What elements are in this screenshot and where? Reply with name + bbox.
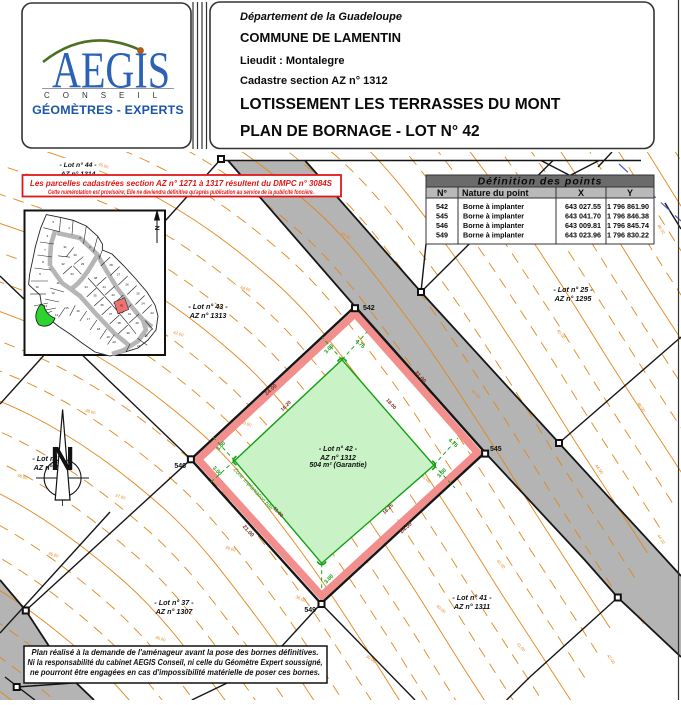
svg-text:- Lot n° 43 -: - Lot n° 43 -: [188, 302, 228, 311]
svg-text:1 796 830.22: 1 796 830.22: [607, 231, 649, 240]
svg-text:41: 41: [128, 312, 132, 316]
svg-text:Lieudit : Montalegre: Lieudit : Montalegre: [240, 55, 345, 67]
svg-text:33: 33: [70, 272, 74, 276]
svg-text:AZ n° 1307: AZ n° 1307: [155, 607, 194, 616]
svg-text:PLAN DE BORNAGE - LOT N° 42: PLAN DE BORNAGE - LOT N° 42: [240, 123, 480, 140]
svg-text:546: 546: [436, 221, 448, 230]
svg-text:12: 12: [51, 291, 55, 295]
svg-text:40: 40: [135, 321, 139, 325]
svg-text:39: 39: [126, 331, 130, 335]
svg-text:Ni la responsabilité du cabine: Ni la responsabilité du cabinet AEGIS Co…: [28, 658, 323, 667]
svg-text:18: 18: [97, 327, 101, 331]
svg-text:1 796 861.90: 1 796 861.90: [607, 202, 649, 211]
svg-text:14: 14: [55, 313, 59, 317]
svg-text:34: 34: [84, 285, 88, 289]
svg-text:13: 13: [44, 304, 48, 308]
svg-text:Cadastre section AZ n° 1312: Cadastre section AZ n° 1312: [240, 75, 388, 87]
svg-text:- Lot n° 41 -: - Lot n° 41 -: [452, 593, 492, 602]
svg-text:N°: N°: [437, 188, 447, 198]
svg-text:31: 31: [63, 245, 67, 249]
svg-text:30: 30: [73, 253, 77, 257]
svg-text:N: N: [51, 440, 75, 477]
svg-text:CONSEIL: CONSEIL: [44, 91, 170, 100]
svg-text:- Lot n° 37 -: - Lot n° 37 -: [154, 598, 194, 607]
svg-text:Définition des points: Définition des points: [478, 176, 603, 188]
svg-text:28: 28: [109, 263, 113, 267]
svg-text:- Lot n° 42 -: - Lot n° 42 -: [319, 445, 358, 453]
svg-text:36: 36: [100, 303, 104, 307]
svg-text:643 041.70: 643 041.70: [565, 212, 601, 221]
svg-text:AZ n° 1311: AZ n° 1311: [453, 602, 490, 611]
svg-text:LOTISSEMENT LES TERRASSES DU M: LOTISSEMENT LES TERRASSES DU MONT: [240, 96, 561, 113]
svg-text:24: 24: [141, 302, 145, 306]
svg-text:29: 29: [81, 262, 85, 266]
svg-text:32: 32: [61, 262, 65, 266]
svg-text:Borne à implanter: Borne à implanter: [463, 212, 524, 221]
svg-text:26: 26: [125, 283, 129, 287]
svg-text:COMMUNE DE LAMENTIN: COMMUNE DE LAMENTIN: [240, 30, 401, 45]
svg-text:25: 25: [136, 292, 140, 296]
svg-text:546: 546: [174, 463, 186, 470]
svg-text:22: 22: [144, 334, 148, 338]
svg-text:37: 37: [109, 312, 113, 316]
svg-text:Y: Y: [627, 188, 633, 198]
svg-text:1 796 845.74: 1 796 845.74: [607, 221, 649, 230]
svg-text:549: 549: [436, 231, 448, 240]
svg-text:Nature du point: Nature du point: [462, 188, 529, 198]
svg-text:AZ n° 1295: AZ n° 1295: [554, 294, 593, 303]
svg-text:1 796 846.38: 1 796 846.38: [607, 212, 649, 221]
svg-text:44: 44: [102, 285, 106, 289]
svg-text:542: 542: [363, 305, 375, 312]
svg-text:35: 35: [93, 294, 97, 298]
svg-text:AZ n° 1312: AZ n° 1312: [319, 454, 356, 462]
svg-text:19: 19: [106, 335, 110, 339]
svg-text:545: 545: [436, 212, 448, 221]
svg-text:504 m² (Garantie): 504 m² (Garantie): [309, 462, 367, 469]
svg-text:N: N: [153, 226, 160, 231]
svg-text:Borne à implanter: Borne à implanter: [463, 231, 524, 240]
svg-text:15: 15: [65, 306, 69, 310]
svg-text:16: 16: [76, 309, 80, 313]
svg-text:20: 20: [112, 340, 116, 344]
svg-text:ne pourront être engagées en c: ne pourront être engagées en cas d'impos…: [30, 668, 320, 677]
svg-text:Plan réalisé à la demande de l: Plan réalisé à la demande de l'aménageur…: [32, 648, 319, 657]
svg-text:Borne à implanter: Borne à implanter: [463, 202, 524, 211]
svg-text:43: 43: [111, 293, 115, 297]
svg-text:Borne à implanter: Borne à implanter: [463, 221, 524, 230]
svg-text:23: 23: [150, 311, 154, 315]
svg-text:AZ n° 1313: AZ n° 1313: [189, 311, 227, 320]
svg-text:GÉOMÈTRES - EXPERTS: GÉOMÈTRES - EXPERTS: [32, 102, 184, 117]
svg-text:643 023.96: 643 023.96: [565, 231, 601, 240]
svg-text:11: 11: [56, 281, 59, 285]
svg-text:Département de la Guadeloupe: Département de la Guadeloupe: [240, 11, 402, 23]
svg-text:27: 27: [117, 273, 121, 277]
svg-text:17: 17: [87, 317, 91, 321]
svg-text:542: 542: [436, 202, 448, 211]
svg-text:Cette numérotation est proviso: Cette numérotation est provisoire; Elle …: [48, 190, 314, 196]
svg-text:549: 549: [304, 607, 316, 614]
svg-text:643 027.55: 643 027.55: [565, 202, 601, 211]
svg-text:48: 48: [94, 276, 98, 280]
svg-text:42: 42: [120, 304, 124, 308]
svg-text:- Lot n° 25 -: - Lot n° 25 -: [553, 285, 593, 294]
svg-text:38: 38: [117, 321, 121, 325]
svg-text:Les parcelles cadastrées secti: Les parcelles cadastrées section AZ n° 1…: [30, 178, 332, 188]
svg-text:X: X: [578, 188, 584, 198]
svg-text:21: 21: [137, 344, 141, 348]
svg-text:545: 545: [490, 446, 502, 453]
svg-text:- Lot n° 44 -: - Lot n° 44 -: [59, 161, 97, 169]
svg-text:643 009.81: 643 009.81: [565, 221, 601, 230]
svg-text:10: 10: [35, 285, 39, 289]
